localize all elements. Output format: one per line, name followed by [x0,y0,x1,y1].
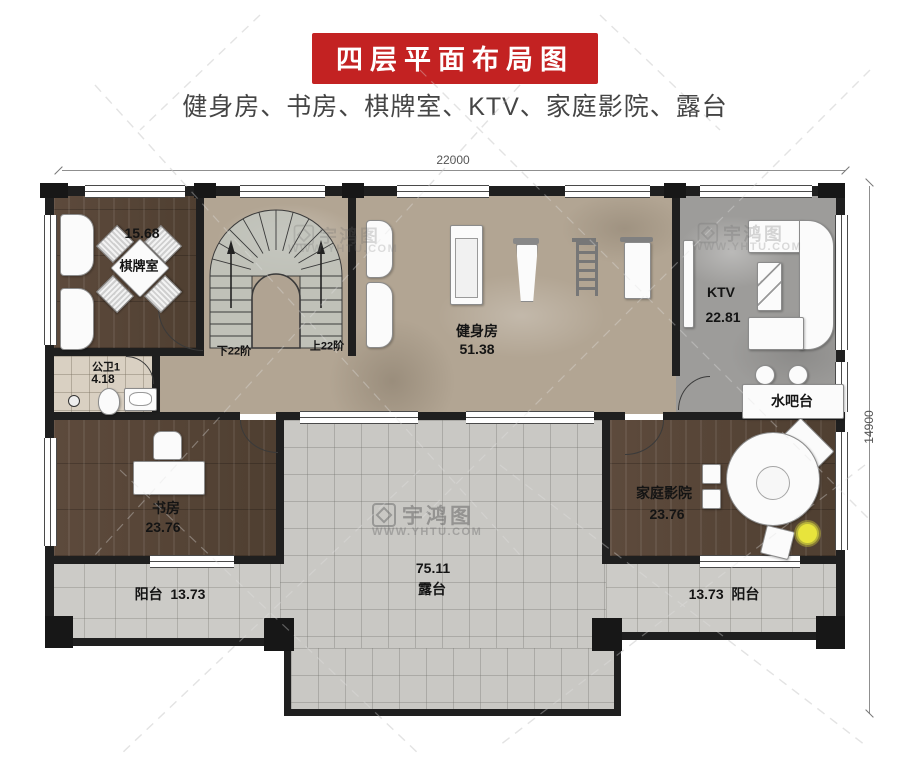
staircase [204,196,348,354]
bar-stool [755,365,775,385]
ktv-sofa-bottom [748,317,804,350]
window [565,185,650,198]
gym-name-label: 健身房 [456,323,498,339]
study-name-label: 书房 [152,500,180,516]
watermark-url-faint: WWW.YHTU.COM [288,243,398,255]
armchair [60,214,94,276]
wall-stairs-gym [348,196,356,356]
gym-area-label: 51.38 [459,341,494,357]
bar-name-label: 水吧台 [771,393,813,409]
window [835,215,848,350]
wall-balcony-right-bottom [606,632,845,640]
window [150,555,234,568]
ktv-tv [683,240,694,328]
side-table [702,464,721,484]
barbell-rack [576,242,598,296]
bathroom-area-label: 4.18 [91,373,114,387]
machine-top-bar [620,237,653,242]
ktv-area-label: 22.81 [705,309,740,325]
theater-name-label: 家庭影院 [636,485,692,501]
top-dimension-line [62,170,845,171]
theater-area-label: 23.76 [649,506,684,522]
round-sofa-center [756,466,790,500]
watermark-url-faint: WWW.YHTU.COM [692,241,802,253]
weight-machine [624,242,651,299]
ktv-name-label: KTV [707,284,735,300]
chess-area-label: 15.68 [124,225,159,241]
terrace-name-label: 露台 [418,581,446,597]
page-title: 四层平面布局图 [312,33,598,84]
top-dimension-label: 22000 [436,153,469,167]
chess-name-label: 棋牌室 [119,260,158,275]
wall-balcony-left-bottom [45,638,283,646]
window [85,185,185,198]
armchair [60,288,94,350]
bench-handles [513,238,539,244]
wall-gym-ktv [672,196,680,376]
window [466,411,594,424]
pillar [818,183,845,198]
pillar [816,616,845,649]
pillar [45,616,73,648]
watermark-url: WWW.YHTU.COM [372,526,482,538]
wall-terrace-theater [602,420,610,562]
stairs-up-label: 上22阶 [310,341,344,354]
window [700,185,812,198]
floor-plan-page: 四层平面布局图 健身房、书房、棋牌室、KTV、家庭影院、露台 22000 149… [0,0,910,767]
balcony-left-name: 阳台 [135,586,163,602]
toilet [98,388,120,415]
pillar [592,618,622,651]
balcony-left-area: 13.73 [170,586,205,602]
desk-chair [153,431,182,460]
ktv-sofa-right [799,220,834,350]
balcony-right-label: 13.73 阳台 [689,586,760,602]
window [300,411,418,424]
bar-stool [788,365,808,385]
pillar [264,618,294,651]
ktv-table [757,262,782,311]
desk [133,461,205,495]
side-table [702,489,721,509]
balcony-left-label: 阳台 13.73 [135,586,206,602]
wall-theater-top-a [606,412,625,420]
gym-chair [366,282,393,348]
balcony-right-area: 13.73 [689,586,724,602]
wall-ext-left [284,648,291,716]
terrace-extension-floor [291,648,614,709]
floor-lamp [796,522,819,545]
rack-top-bar [572,238,596,242]
floor-drain-icon [68,395,80,407]
window [397,185,489,198]
study-area-label: 23.76 [145,519,180,535]
right-dimension-label: 14900 [862,394,876,460]
watermark-logo-icon [372,503,396,527]
terrace-area-label: 75.11 [416,560,450,576]
treadmill-belt [455,238,478,298]
pillar [40,183,68,198]
balcony-right-name: 阳台 [731,586,759,602]
stairs-down-label: 下22阶 [217,346,251,359]
wall-hall-study [160,412,240,420]
page-subtitle: 健身房、书房、棋牌室、KTV、家庭影院、露台 [182,87,728,123]
window [835,432,848,550]
wall-ext-right [614,648,621,716]
window [44,438,57,546]
sink-bowl [129,392,152,406]
pillar [664,183,686,198]
wall-ext-bottom [284,709,621,716]
window [44,215,57,345]
